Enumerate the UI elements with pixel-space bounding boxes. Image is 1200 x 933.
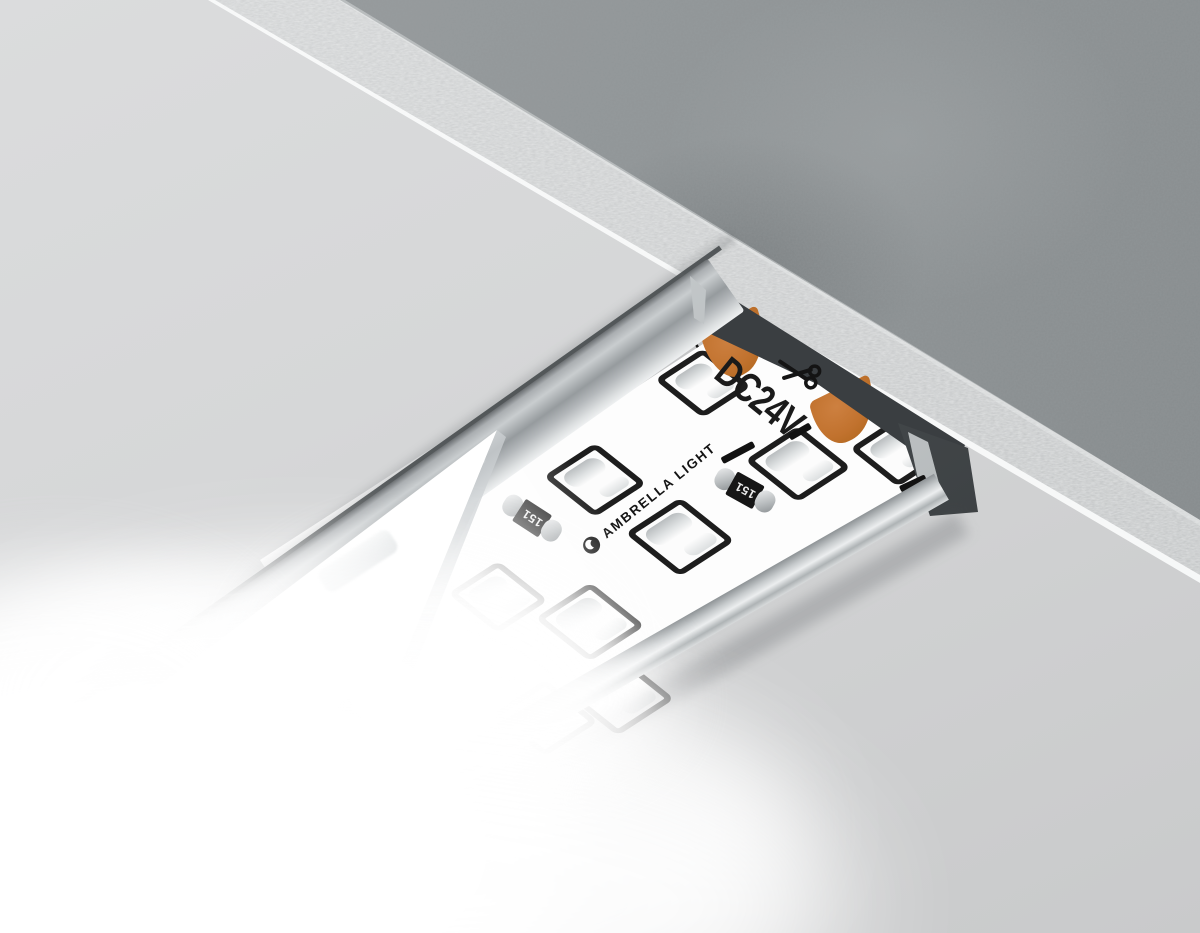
led-reflection xyxy=(799,458,837,484)
light-glow xyxy=(360,610,680,790)
scene: 151151AMBRELLA LIGHT DC24V+ xyxy=(0,0,1200,933)
scissors-icon xyxy=(774,355,823,403)
